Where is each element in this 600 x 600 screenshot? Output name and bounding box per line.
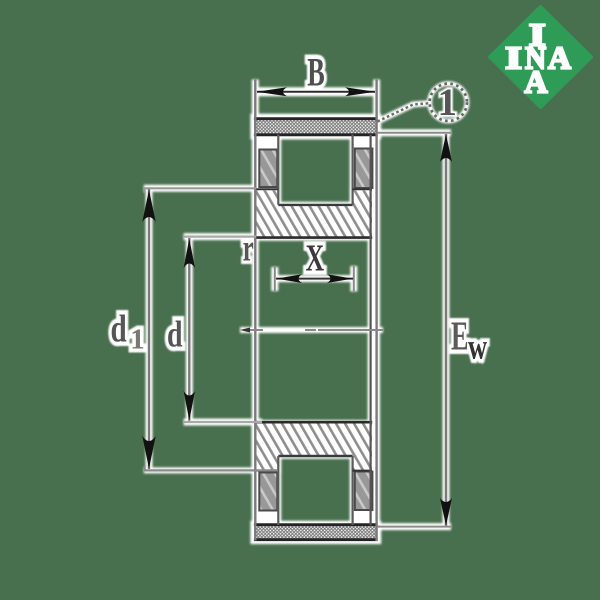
- svg-text:E: E: [451, 313, 469, 359]
- svg-text:B: B: [307, 50, 325, 95]
- svg-text:d: d: [167, 315, 183, 356]
- svg-text:A: A: [548, 40, 571, 76]
- svg-text:A: A: [525, 64, 548, 100]
- svg-text:d: d: [111, 308, 127, 351]
- svg-text:1: 1: [130, 324, 145, 356]
- svg-text:r: r: [243, 228, 254, 270]
- svg-text:X: X: [306, 238, 325, 280]
- svg-text:I: I: [505, 40, 522, 76]
- svg-text:1: 1: [438, 81, 458, 124]
- svg-text:w: w: [468, 327, 487, 367]
